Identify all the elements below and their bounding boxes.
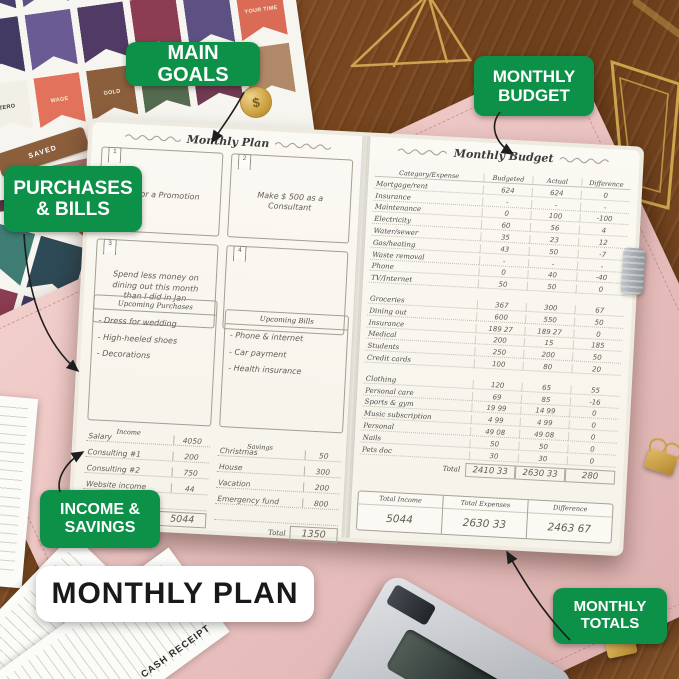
list-item: - Car payment [229,347,341,362]
flag-sticker: ZERO [0,79,33,135]
flag-sticker [0,0,16,15]
squiggle [275,141,331,150]
product-photo-scene: STOPYOUR TIMEZEROWAGEGOLDTHE MIND SAVEDE… [0,0,679,679]
budget-table: Category/Expense Budgeted Actual Differe… [359,163,631,486]
flag-sticker [16,0,69,7]
monthly-budget-page: Monthly Budget Category/Expense Budgeted… [347,136,640,552]
total-label: Total [268,528,286,537]
list-item: - High-heeled shoes [97,332,209,347]
monthly-plan-banner: MONTHLY PLAN [36,566,314,622]
plan-title: Monthly Plan [186,133,269,150]
summary-value: 5044 [357,504,442,533]
income-total-value: 5044 [158,511,207,528]
savings-row-value: 50 [305,450,342,461]
goal-box-2: 2 Make $ 500 as a Consultant [227,153,353,243]
savings-total-value: 1350 [289,526,338,543]
purchases-list: - Dress for wedding- High-heeled shoes- … [91,309,216,377]
row-value: 200 [303,482,340,493]
row-value: 44 [171,484,208,495]
squiggle [125,133,181,142]
calculator-display [385,628,517,679]
receipt-lines [0,403,28,578]
goal-flag-icon: 3 [103,239,117,256]
coin-label: $ [251,94,260,110]
budget-title: Monthly Budget [454,147,554,165]
list-item: - Phone & internet [230,330,342,345]
purchases-bills-badge: PURCHASES & BILLS [4,166,142,232]
main-goals-badge: MAIN GOALS [126,42,260,86]
summary-value: 2463 67 [527,513,612,542]
savings-table: Christmas Savings 50 House300Vacation200… [213,440,342,545]
monthly-totals-badge: MONTHLY TOTALS [553,588,667,644]
flag-sticker: WAGE [33,72,86,128]
budget-amount: 30 [469,451,518,463]
summary-total-expenses: Total Expenses 2630 33 [441,496,528,538]
goal-flag-icon: 2 [238,154,252,171]
summary-total-income: Total Income 5044 [357,491,443,533]
goal-flag-icon: 4 [233,245,247,262]
list-item: - Health insurance [228,364,340,379]
flag-sticker [25,9,78,71]
goal-flag-icon: 1 [108,147,122,164]
summary-value: 2630 33 [442,509,527,538]
budget-amount: 0 [567,456,616,468]
squiggle [559,156,609,165]
income-savings-badge: INCOME & SAVINGS [40,490,160,548]
upcoming-bills-box: Upcoming Bills - Phone & internet- Car p… [219,309,349,433]
elastic-pen-loop [620,247,645,294]
total-budgeted: 2410 33 [465,462,516,479]
flag-sticker [0,16,25,78]
budget-rows: Mortgage/rent6246240Insurance---Maintena… [360,177,630,468]
goal-text: Make $ 500 as a Consultant [236,189,343,215]
row-value: 200 [172,452,209,463]
total-actual: 2630 33 [515,465,566,482]
total-difference: 280 [565,468,616,485]
list-item: - Dress for wedding [98,316,210,331]
flag-sticker [77,1,130,63]
flag-sticker: YOUR TIME [234,0,287,41]
upcoming-purchases-box: Upcoming Purchases - Dress for wedding- … [87,294,217,426]
summary-difference: Difference 2463 67 [526,500,613,542]
squiggle [398,147,448,156]
income-row-value: 4050 [173,436,210,447]
total-label: Total [359,460,465,474]
list-item: - Decorations [97,349,209,364]
bills-list: - Phone & internet- Car payment- Health … [222,324,347,392]
budget-amount: 30 [518,453,567,465]
savings-rows: House300Vacation200Emergency fund800 [214,456,341,526]
row-value: 300 [304,466,341,477]
budget-summary-strip: Total Income 5044 Total Expenses 2630 33… [356,490,614,543]
monthly-budget-badge: MONTHLY BUDGET [474,56,594,116]
